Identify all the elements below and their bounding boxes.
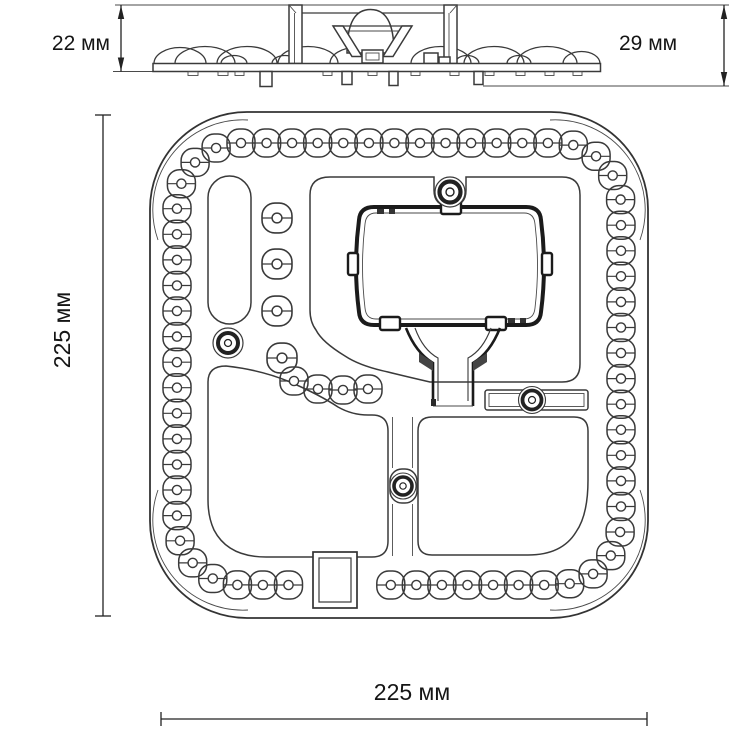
- screw-top: [435, 177, 465, 207]
- housing-tab-bottom-right: [486, 317, 506, 330]
- inner-island-bottom-right: [418, 417, 588, 555]
- bracket-notch: [431, 399, 436, 406]
- bottom-socket: [313, 552, 357, 608]
- housing-tab-right: [542, 253, 552, 275]
- board-pins: [188, 72, 582, 87]
- dimension-plan-width: 225 мм: [161, 679, 647, 726]
- plan-height-label: 225 мм: [49, 292, 75, 368]
- dimension-plan-height: 225 мм: [49, 115, 111, 616]
- plan-width-label: 225 мм: [374, 679, 450, 705]
- housing-mark: [377, 209, 384, 214]
- top-view: [150, 112, 648, 618]
- housing-tab-left: [348, 253, 358, 275]
- screw-bar: [519, 387, 546, 414]
- dimension-side-height: 22 мм: [52, 5, 124, 72]
- housing-mark: [520, 318, 526, 323]
- screw-left: [213, 328, 243, 358]
- housing-mark: [389, 209, 395, 214]
- drawing-canvas: 22 мм 29 мм: [0, 0, 733, 733]
- side-total-height-label: 29 мм: [619, 32, 677, 55]
- side-height-label: 22 мм: [52, 32, 110, 55]
- led-module-technical-drawing: 22 мм 29 мм: [0, 0, 733, 733]
- pill-slot: [208, 176, 251, 324]
- dimension-side-total-height: 29 мм: [619, 5, 727, 86]
- housing-mark: [508, 318, 515, 323]
- pcb-board-profile: [153, 64, 601, 72]
- screw-bottom: [390, 473, 416, 499]
- housing-tab-bottom-left: [380, 317, 400, 330]
- connector-housing: [348, 202, 552, 330]
